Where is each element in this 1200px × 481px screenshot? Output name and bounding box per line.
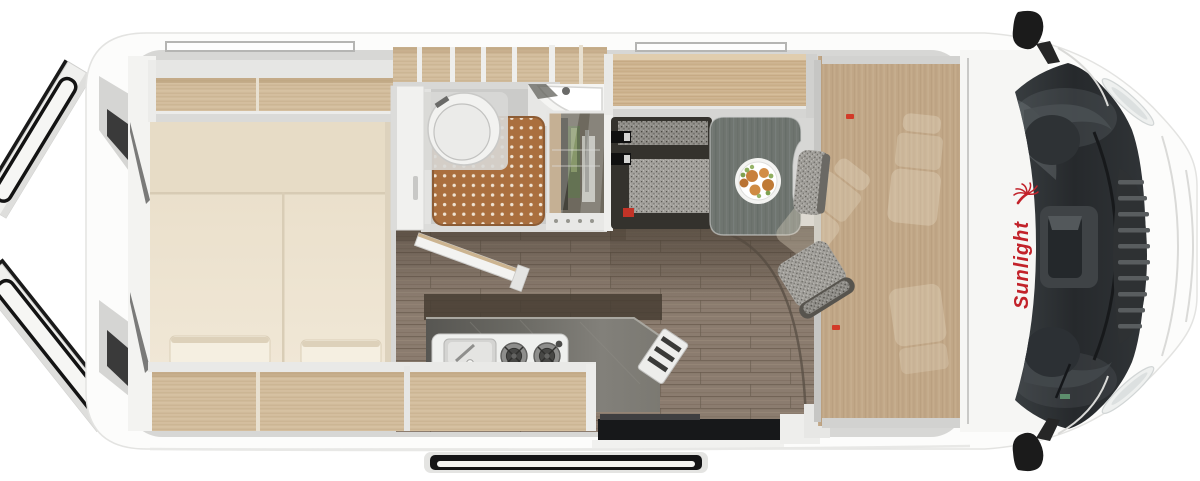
svg-text:Sunlight: Sunlight [1011,221,1033,309]
